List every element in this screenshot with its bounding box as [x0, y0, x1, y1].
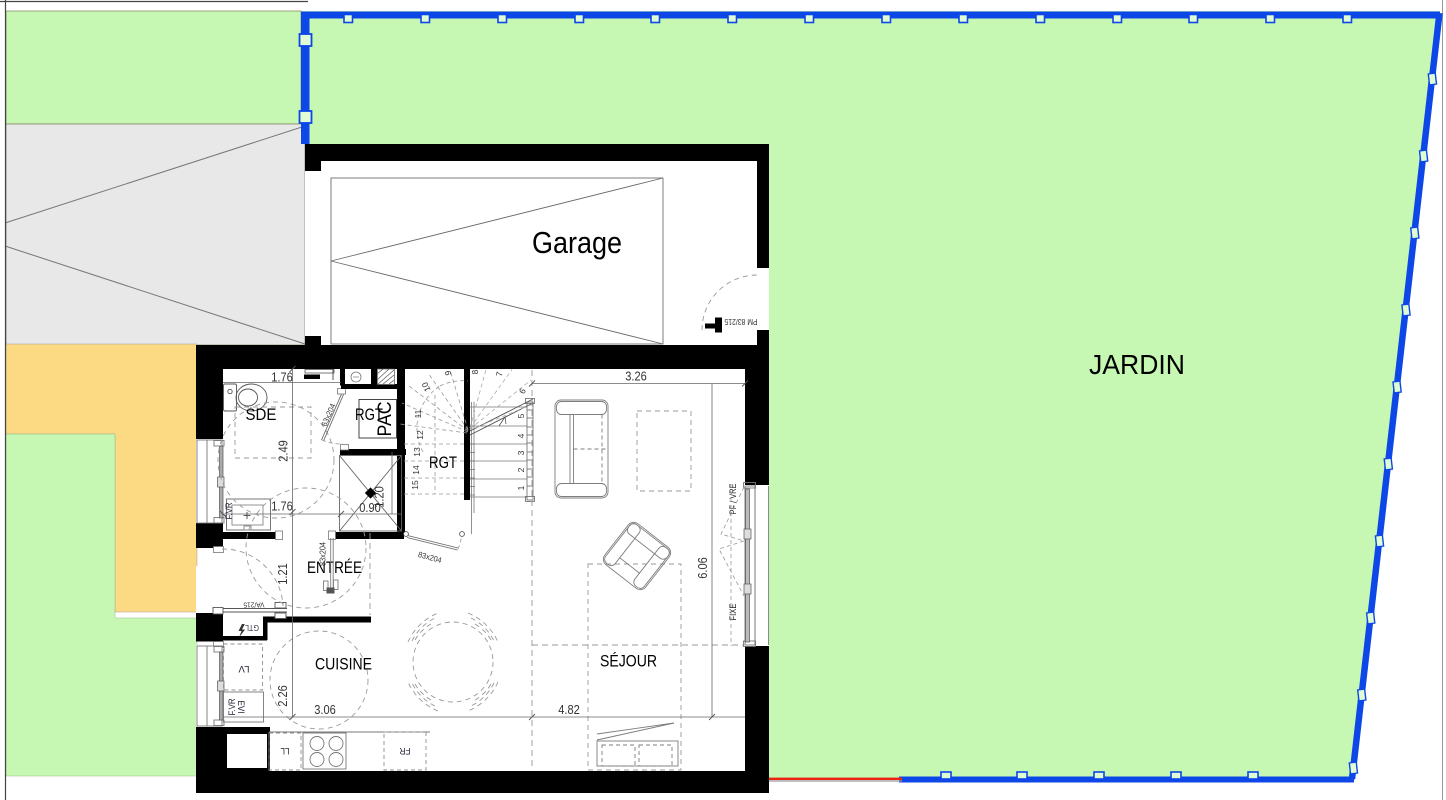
svg-text:3.26: 3.26	[625, 369, 647, 384]
svg-text:PF / VRE: PF / VRE	[728, 484, 738, 515]
svg-text:14: 14	[411, 465, 421, 475]
svg-text:1.21: 1.21	[275, 563, 290, 585]
svg-text:2: 2	[516, 467, 526, 472]
svg-text:5: 5	[516, 413, 526, 418]
svg-text:12: 12	[415, 430, 425, 440]
svg-text:F.VR: F.VR	[227, 698, 237, 715]
svg-text:CUISINE: CUISINE	[315, 656, 372, 674]
svg-text:2.26: 2.26	[275, 685, 290, 707]
svg-text:13: 13	[412, 447, 422, 457]
svg-text:4.82: 4.82	[558, 702, 580, 717]
svg-text:11: 11	[413, 409, 423, 418]
svg-text:3.06: 3.06	[314, 702, 336, 717]
svg-text:JARDIN: JARDIN	[1089, 349, 1185, 380]
svg-text:PAC: PAC	[375, 402, 396, 437]
svg-text:4: 4	[516, 433, 526, 438]
svg-text:1: 1	[516, 485, 526, 490]
svg-text:RGT: RGT	[429, 453, 457, 472]
svg-text:GTL: GTL	[245, 623, 259, 633]
svg-text:Garage: Garage	[532, 225, 622, 260]
svg-text:EVI: EVI	[236, 701, 246, 714]
svg-text:1.76: 1.76	[271, 499, 293, 514]
svg-text:1.76: 1.76	[271, 370, 293, 385]
svg-text:SÉJOUR: SÉJOUR	[600, 652, 657, 671]
svg-text:FR: FR	[399, 746, 410, 756]
svg-text:LL: LL	[281, 746, 290, 756]
svg-text:6.06: 6.06	[695, 557, 710, 579]
svg-text:PM 83/215: PM 83/215	[724, 317, 757, 326]
svg-text:3: 3	[516, 450, 526, 455]
svg-text:FIXE: FIXE	[728, 604, 738, 621]
svg-text:LV: LV	[239, 664, 250, 674]
svg-text:83x204: 83x204	[319, 542, 328, 567]
svg-text:2.49: 2.49	[276, 440, 291, 462]
svg-text:15: 15	[410, 480, 420, 490]
svg-text:1.20: 1.20	[372, 486, 387, 508]
svg-text:ENTRÉE: ENTRÉE	[307, 558, 362, 577]
svg-text:VA/215: VA/215	[244, 601, 265, 610]
